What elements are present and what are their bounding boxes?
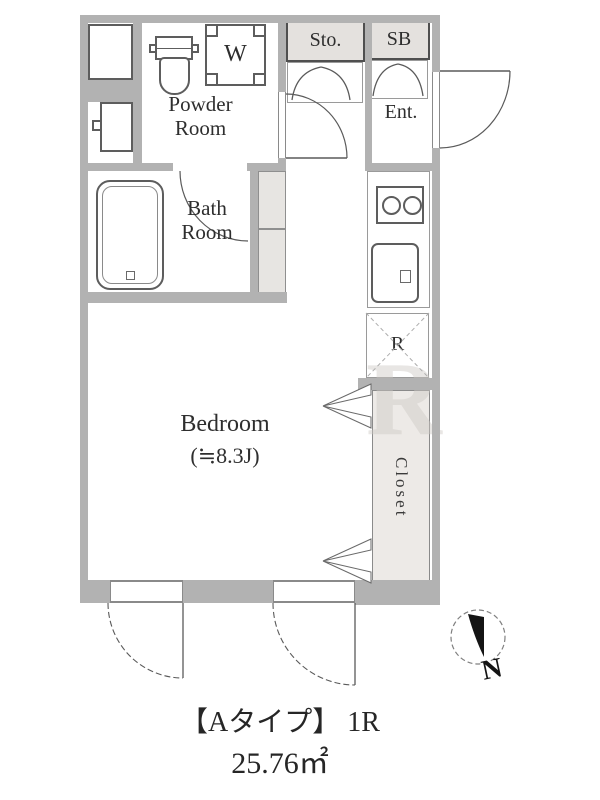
north-label: N (469, 651, 514, 688)
washing-machine-corner (205, 24, 218, 37)
wall-hall-entrance (365, 15, 372, 171)
entrance-door-swing-arc (440, 71, 510, 148)
entrance-label: Ent. (370, 102, 432, 123)
caption-area: 25.76㎡ (60, 738, 500, 782)
vanity-tap-icon (92, 120, 102, 131)
sink-tap-icon (400, 270, 411, 283)
wall-left (80, 15, 88, 603)
stove-burner-icon (403, 196, 422, 215)
door-opening-hall (278, 92, 286, 158)
wall-bottom-seg1 (80, 580, 110, 603)
pipe-space-upper (258, 171, 286, 229)
bathtub-icon (96, 180, 164, 290)
shoe-box-compartment (368, 60, 428, 99)
wall-under-powder-right (247, 163, 286, 171)
powder-counter-icon (88, 24, 133, 80)
window-opening-left (110, 580, 183, 603)
pipe-space-lower (258, 229, 286, 300)
stove-burner-icon (382, 196, 401, 215)
caption-type: 【Aタイプ】 1R (60, 700, 500, 740)
floor-plan: Sto. SB Closet R W R (0, 0, 600, 800)
toilet-bowl-icon (159, 57, 190, 95)
toilet-knob-left-icon (149, 44, 157, 53)
wall-under-refrigerator (358, 378, 440, 390)
storage-box: Sto. (286, 18, 365, 62)
entrance-door-opening (432, 72, 440, 148)
bathtub-drain-icon (126, 271, 135, 280)
window-opening-right (273, 580, 355, 603)
washing-machine-corner (253, 24, 266, 37)
bath-room-label-2: Room (158, 221, 256, 243)
bifold-door-icon (323, 539, 371, 583)
wall-bedroom-top (80, 292, 287, 303)
washing-machine-corner (205, 73, 218, 86)
powder-room-label-1: Powder (138, 93, 263, 115)
bath-room-label-1: Bath (158, 197, 256, 219)
powder-room-label-2: Room (138, 117, 263, 139)
shoe-box: SB (368, 18, 430, 60)
storage-label: Sto. (310, 29, 342, 52)
bottom-door-swing-arc (273, 603, 355, 685)
bathtub-inner-line (102, 186, 158, 284)
shoe-box-label: SB (387, 28, 411, 51)
compass-needle (468, 614, 484, 657)
bottom-door-swing-arc (108, 603, 183, 678)
hall-door-swing-arc (286, 94, 347, 158)
washing-machine-corner (253, 73, 266, 86)
bedroom-size-label: (≒8.3J) (115, 444, 335, 467)
closet-label: Closet (391, 457, 411, 518)
toilet-tank-line (157, 48, 191, 49)
wall-entrance-step (365, 163, 440, 171)
wall-powder-left-column (133, 15, 142, 163)
watermark-text: R (366, 346, 442, 451)
vanity-sink-icon (100, 102, 133, 152)
bifold-door-leaf (323, 539, 371, 561)
toilet-knob-right-icon (191, 44, 199, 53)
washing-machine-label: W (207, 42, 264, 67)
wall-under-powder-left (80, 163, 173, 171)
wall-bottom-seg3 (355, 580, 440, 605)
storage-compartment (287, 62, 363, 103)
kitchen-sink-icon (371, 243, 419, 303)
washing-machine-icon: W (205, 24, 266, 86)
bedroom-label: Bedroom (115, 412, 335, 437)
wall-bottom-seg2 (183, 580, 273, 603)
